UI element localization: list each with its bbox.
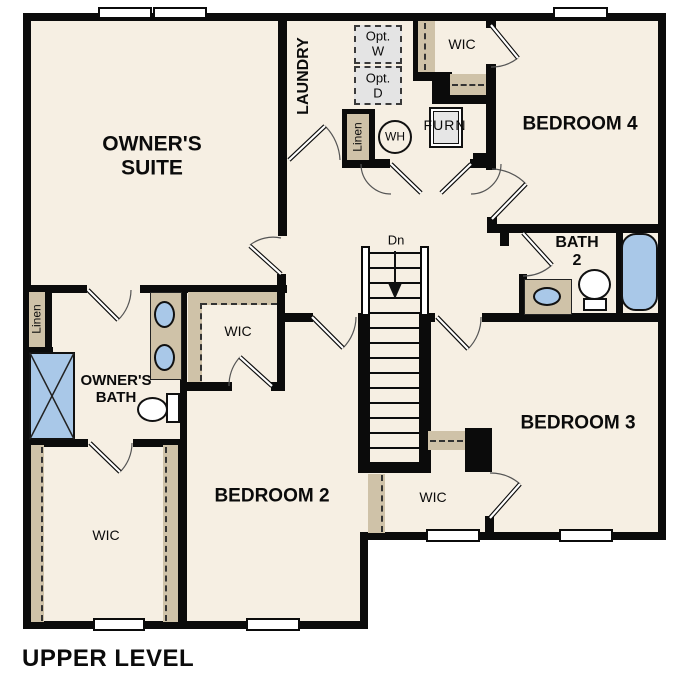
label-opt-washer: Opt. W: [366, 29, 391, 58]
room-label-laundry: LAUNDRY: [295, 37, 313, 115]
room-label-owners-suite: OWNER'S SUITE: [102, 132, 202, 179]
wall: [45, 292, 52, 354]
room-label-bedroom3: BEDROOM 3: [520, 412, 635, 433]
wall: [495, 224, 666, 233]
wall: [283, 313, 313, 322]
closet-shelf: [418, 21, 435, 72]
room-label-bath2: BATH 2: [555, 234, 598, 270]
wall: [278, 21, 287, 236]
label-water-heater: WH: [385, 130, 405, 143]
wall: [485, 516, 494, 533]
stair-railing: [361, 246, 370, 314]
room-label-bedroom4: BEDROOM 4: [522, 113, 637, 134]
wall: [482, 313, 666, 322]
page-title: UPPER LEVEL: [22, 645, 194, 673]
room-label-wic-bedroom3: WIC: [419, 490, 446, 506]
label-stairs-down: Dn: [388, 234, 405, 249]
wall: [358, 464, 431, 473]
label-linen-bath: Linen: [30, 304, 43, 333]
wall: [413, 72, 452, 81]
wall: [23, 621, 368, 629]
wall: [369, 109, 375, 160]
wall: [271, 382, 285, 391]
wall: [360, 532, 666, 540]
room-label-wic-middle: WIC: [224, 324, 251, 340]
window: [98, 7, 152, 19]
sink-basin: [154, 301, 175, 328]
shower: [29, 352, 75, 440]
wall: [486, 21, 496, 28]
window: [246, 618, 300, 631]
label-opt-dryer: Opt. D: [366, 71, 391, 100]
closet-rod: [381, 475, 383, 532]
closet-rod: [41, 447, 43, 621]
window: [553, 7, 608, 19]
wall: [180, 382, 232, 391]
wall: [277, 285, 285, 391]
toilet-tank: [166, 393, 180, 423]
room-label-wic-top: WIC: [448, 37, 475, 53]
window: [93, 618, 145, 631]
toilet-tank: [583, 298, 607, 311]
exterior-cutout: [368, 540, 667, 630]
window: [559, 529, 613, 542]
wall: [465, 428, 492, 472]
wall: [178, 447, 187, 623]
bathtub: [621, 233, 658, 311]
wall: [500, 233, 509, 246]
sink-basin: [533, 287, 561, 306]
window: [426, 529, 480, 542]
wall: [342, 159, 390, 168]
closet-rod: [201, 303, 277, 305]
closet-rod: [424, 23, 426, 70]
label-furnace: FURN: [424, 118, 467, 134]
floor-plan: OWNER'S SUITE LAUNDRY Opt. W Opt. D WIC …: [0, 0, 687, 687]
toilet-bowl: [578, 269, 611, 300]
stair-railing: [420, 246, 429, 314]
sink-basin: [154, 344, 175, 371]
room-label-wic-left: WIC: [92, 528, 119, 544]
room-label-bedroom2: BEDROOM 2: [214, 485, 329, 506]
closet-rod: [165, 447, 167, 621]
closet-rod: [452, 84, 484, 86]
wall: [473, 153, 495, 167]
wall: [360, 532, 368, 629]
wall: [133, 439, 187, 447]
wall: [432, 81, 452, 104]
closet-rod: [430, 440, 463, 442]
room-label-owners-bath: OWNER'S BATH: [80, 373, 151, 407]
wall: [450, 95, 488, 104]
window: [153, 7, 207, 19]
stair-treads: [369, 252, 420, 465]
label-linen-hall: Linen: [351, 122, 364, 151]
closet-rod: [200, 303, 202, 381]
wall: [658, 13, 666, 540]
